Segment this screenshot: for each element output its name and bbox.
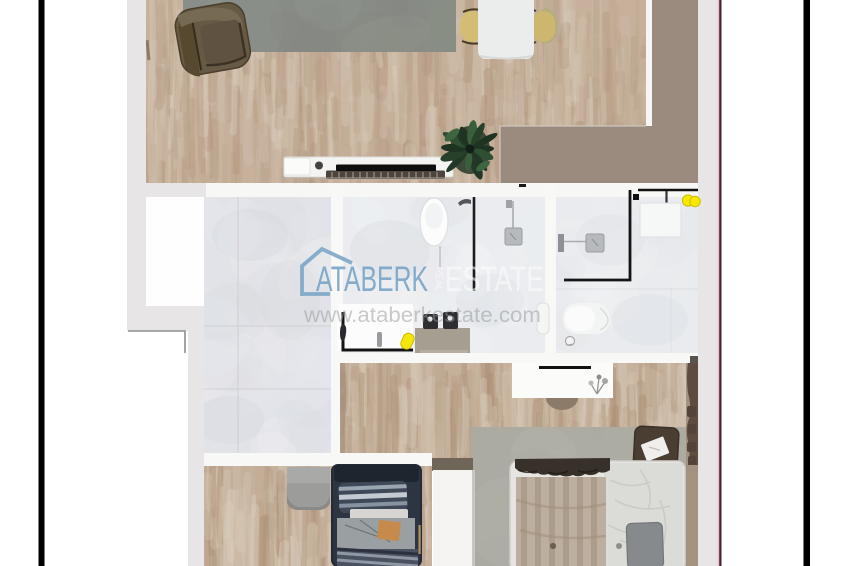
svg-text:www.ataberkestate.com: www.ataberkestate.com xyxy=(303,304,541,327)
svg-text:REAL: REAL xyxy=(434,267,444,291)
svg-text:ESTATE: ESTATE xyxy=(445,259,544,299)
svg-text:ATABERK: ATABERK xyxy=(316,259,428,299)
